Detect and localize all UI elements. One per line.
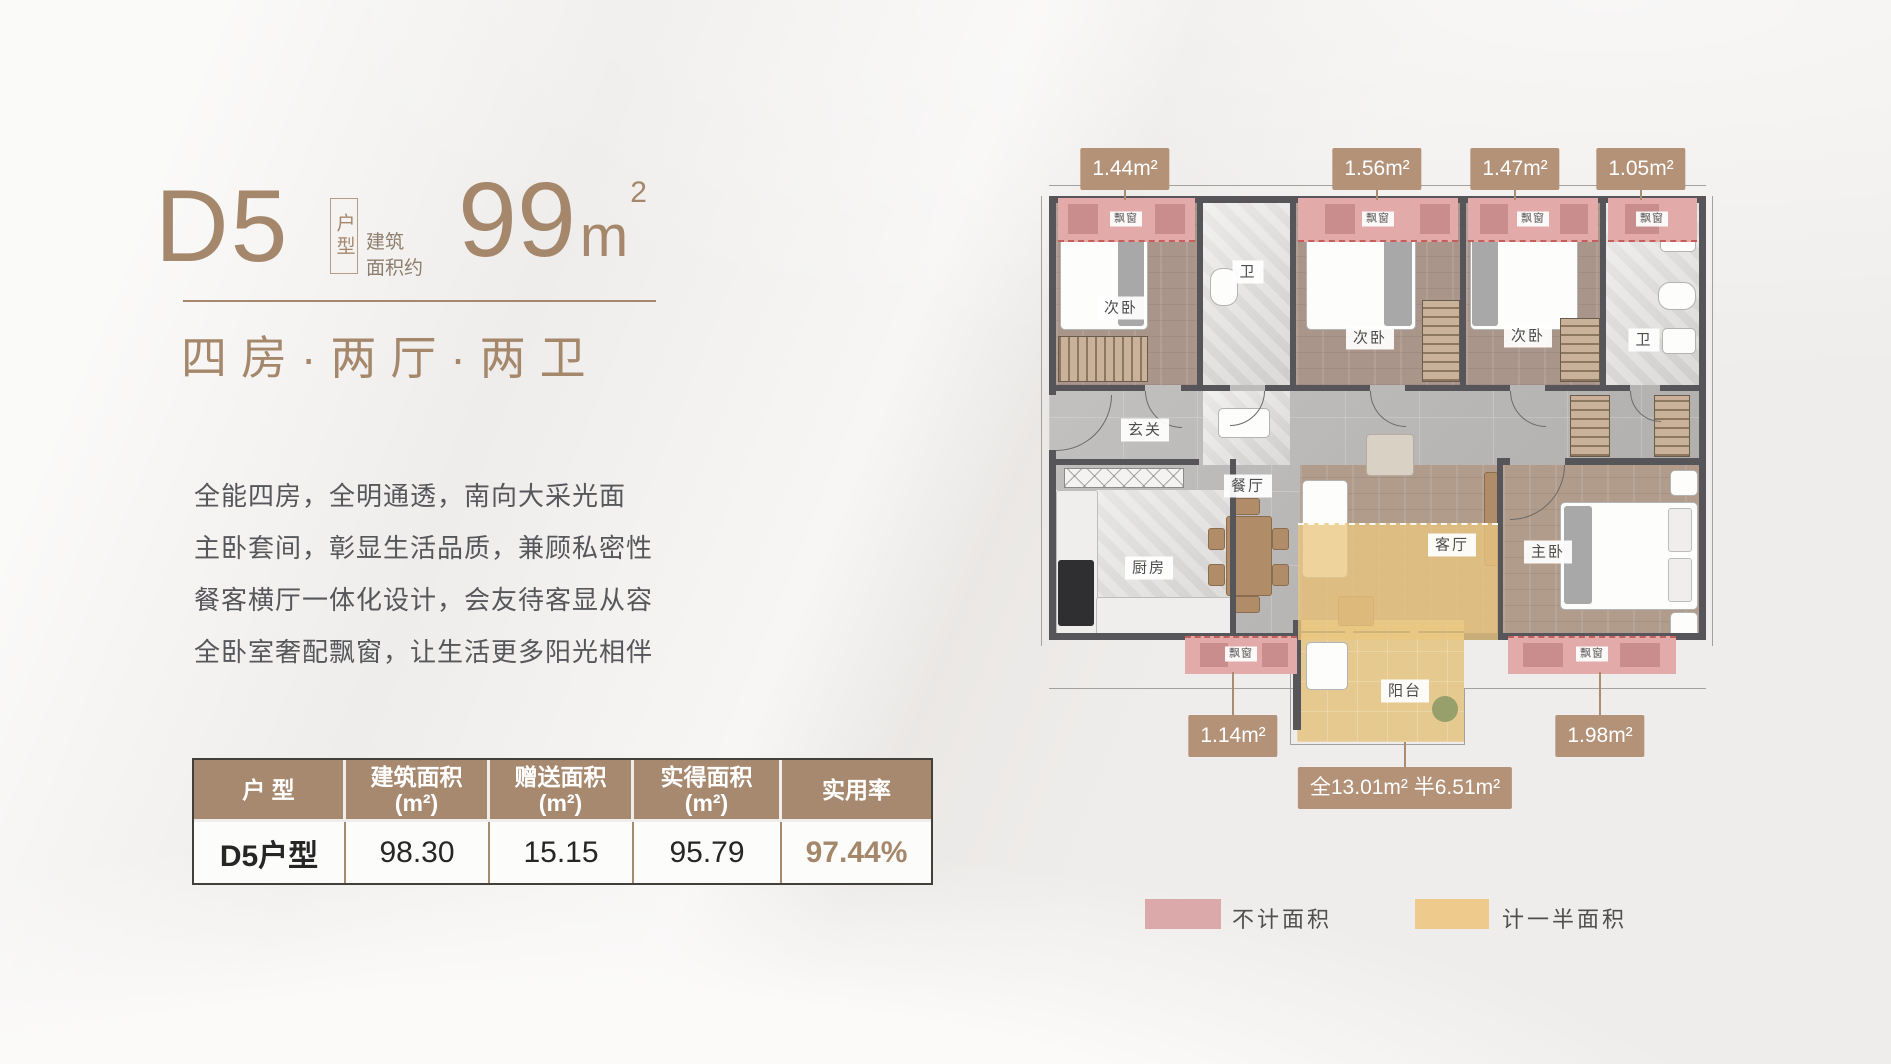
- bay-cushion: [1420, 204, 1450, 234]
- room-label-balcony: 阳台: [1381, 680, 1429, 703]
- blanket: [1384, 232, 1412, 326]
- wall: [1049, 385, 1145, 391]
- wall: [1049, 450, 1056, 640]
- bay-cushion: [1523, 643, 1563, 667]
- room-label-bedroom: 次卧: [1504, 325, 1552, 348]
- unit-code: D5: [155, 176, 289, 276]
- shoe-cabinet: [1064, 468, 1184, 488]
- wall: [1049, 196, 1056, 395]
- wall: [1545, 385, 1630, 391]
- badge-stem: [1124, 190, 1126, 200]
- description-line: 全卧室奢配飘窗，让生活更多阳光相伴: [194, 632, 653, 669]
- bay-cushion: [1155, 204, 1185, 234]
- plant: [1432, 696, 1458, 722]
- area-superscript: 2: [630, 178, 647, 208]
- table-cell-gift-area: 15.15: [490, 822, 634, 883]
- wall: [1600, 196, 1606, 391]
- area-prefix-line2: 面积约: [366, 256, 423, 282]
- room-label-kitchen: 厨房: [1125, 557, 1173, 580]
- legend-swatch-yellow: [1415, 899, 1489, 929]
- badge-stem: [1514, 190, 1516, 200]
- room-label-bath: 卫: [1628, 329, 1659, 352]
- room-label-entry: 玄关: [1121, 419, 1169, 442]
- area-unit: m: [580, 212, 628, 262]
- chair: [1208, 528, 1225, 550]
- area-badge: 1.47m²: [1470, 148, 1559, 190]
- pillow: [1668, 558, 1692, 602]
- room-label-dining: 餐厅: [1224, 475, 1272, 498]
- badge-stem: [1404, 742, 1406, 767]
- badge-stem: [1376, 190, 1378, 200]
- title-divider: [183, 300, 656, 302]
- description-line: 餐客横厅一体化设计，会友待客显从容: [194, 580, 653, 617]
- poster: D5 户型 建筑 面积约 99 m 2 四房·两厅·两卫 全能四房，全明通透，南…: [0, 0, 1891, 1064]
- bay-window-label: 飘窗: [1110, 212, 1142, 227]
- area-prefix-line1: 建筑: [366, 230, 423, 256]
- wardrobe: [1570, 395, 1610, 457]
- table-header-actual-area: 实得面积(m²): [634, 760, 782, 822]
- pillow: [1668, 508, 1692, 552]
- floor-plan: 次卧 卫 次卧 次卧 卫 玄关 餐厅 厨房 客厅 主卧 阳台 飘窗 飘窗 飘窗 …: [1040, 140, 1720, 850]
- wall: [1699, 196, 1706, 640]
- bay-window-label: 飘窗: [1362, 212, 1394, 227]
- blanket: [1472, 232, 1498, 326]
- wall: [1181, 385, 1230, 391]
- bay-window-label: 飘窗: [1636, 212, 1668, 227]
- description-line: 全能四房，全明通透，南向大采光面: [194, 476, 626, 513]
- exterior-line: [1464, 688, 1706, 689]
- area-table: 户 型 建筑面积(m²) 赠送面积(m²) 实得面积(m²) 实用率 D5户型 …: [192, 758, 933, 885]
- wall: [1565, 458, 1699, 465]
- wall: [1405, 385, 1510, 391]
- bay-cushion: [1262, 643, 1288, 667]
- table-cell-name: D5户型: [194, 822, 346, 883]
- wardrobe: [1560, 318, 1600, 382]
- exterior-line: [1712, 196, 1713, 646]
- unit-tag-box: 户型: [330, 198, 358, 274]
- room-label-master: 主卧: [1524, 541, 1572, 564]
- wall: [1049, 459, 1199, 465]
- chair: [1234, 596, 1260, 613]
- wall: [1265, 385, 1370, 391]
- chair: [1208, 564, 1225, 586]
- exterior-line: [1049, 688, 1297, 689]
- exterior-line: [1041, 196, 1042, 646]
- unit-tag-label: 户型: [331, 213, 358, 259]
- toilet: [1658, 282, 1696, 310]
- bay-cushion: [1325, 204, 1355, 234]
- table-header-type: 户 型: [194, 760, 346, 822]
- room-label-bedroom: 次卧: [1097, 297, 1145, 320]
- bay-window-label: 飘窗: [1576, 647, 1608, 662]
- area-badge: 1.44m²: [1080, 148, 1169, 190]
- chair: [1234, 498, 1260, 515]
- wall: [1497, 458, 1510, 465]
- wall: [1460, 196, 1466, 391]
- area-value: 99 m 2: [458, 170, 647, 270]
- wall: [1197, 196, 1203, 391]
- washing-machine: [1306, 642, 1348, 690]
- bay-window-label: 飘窗: [1517, 212, 1549, 227]
- bay-cushion: [1560, 204, 1588, 234]
- chair: [1272, 528, 1289, 550]
- room-label-bath: 卫: [1232, 261, 1263, 284]
- legend-label-pink: 不计面积: [1232, 902, 1332, 934]
- bay-window-label: 飘窗: [1225, 647, 1257, 662]
- table-cell-actual-area: 95.79: [634, 822, 782, 883]
- wall: [1660, 385, 1706, 391]
- room-label-bedroom: 次卧: [1346, 327, 1394, 350]
- room-label-living: 客厅: [1428, 534, 1476, 557]
- area-number: 99: [458, 170, 576, 270]
- area-badge: 1.14m²: [1188, 715, 1277, 757]
- armchair: [1366, 434, 1414, 476]
- area-badge: 全13.01m² 半6.51m²: [1298, 767, 1512, 809]
- washbasin: [1662, 328, 1696, 354]
- wardrobe: [1058, 336, 1148, 382]
- table-cell-efficiency: 97.44%: [782, 822, 931, 883]
- table-cell-build-area: 98.30: [346, 822, 490, 883]
- layout-subtitle: 四房·两厅·两卫: [181, 322, 600, 388]
- chair: [1272, 564, 1289, 586]
- legend-swatch-pink: [1145, 899, 1221, 929]
- table-header-gift-area: 赠送面积(m²): [490, 760, 634, 822]
- area-prefix: 建筑 面积约: [366, 230, 423, 282]
- area-badge: 1.05m²: [1596, 148, 1685, 190]
- exterior-line: [1464, 688, 1465, 745]
- badge-stem: [1640, 190, 1642, 200]
- bay-cushion: [1068, 204, 1098, 234]
- description-line: 主卧套间，彰显生活品质，兼顾私密性: [194, 528, 653, 565]
- exterior-line: [1290, 744, 1465, 745]
- bay-cushion: [1200, 643, 1228, 667]
- stove: [1058, 560, 1094, 626]
- wardrobe: [1422, 300, 1460, 382]
- wall: [1290, 196, 1296, 391]
- area-badge: 1.56m²: [1332, 148, 1421, 190]
- table-header-build-area: 建筑面积(m²): [346, 760, 490, 822]
- legend-label-yellow: 计一半面积: [1502, 902, 1627, 934]
- bay-cushion: [1480, 204, 1508, 234]
- table-header-efficiency: 实用率: [782, 760, 931, 822]
- nightstand: [1670, 470, 1698, 496]
- badge-stem: [1599, 672, 1601, 715]
- area-badge: 1.98m²: [1555, 715, 1644, 757]
- badge-stem: [1232, 672, 1234, 715]
- bay-cushion: [1620, 643, 1660, 667]
